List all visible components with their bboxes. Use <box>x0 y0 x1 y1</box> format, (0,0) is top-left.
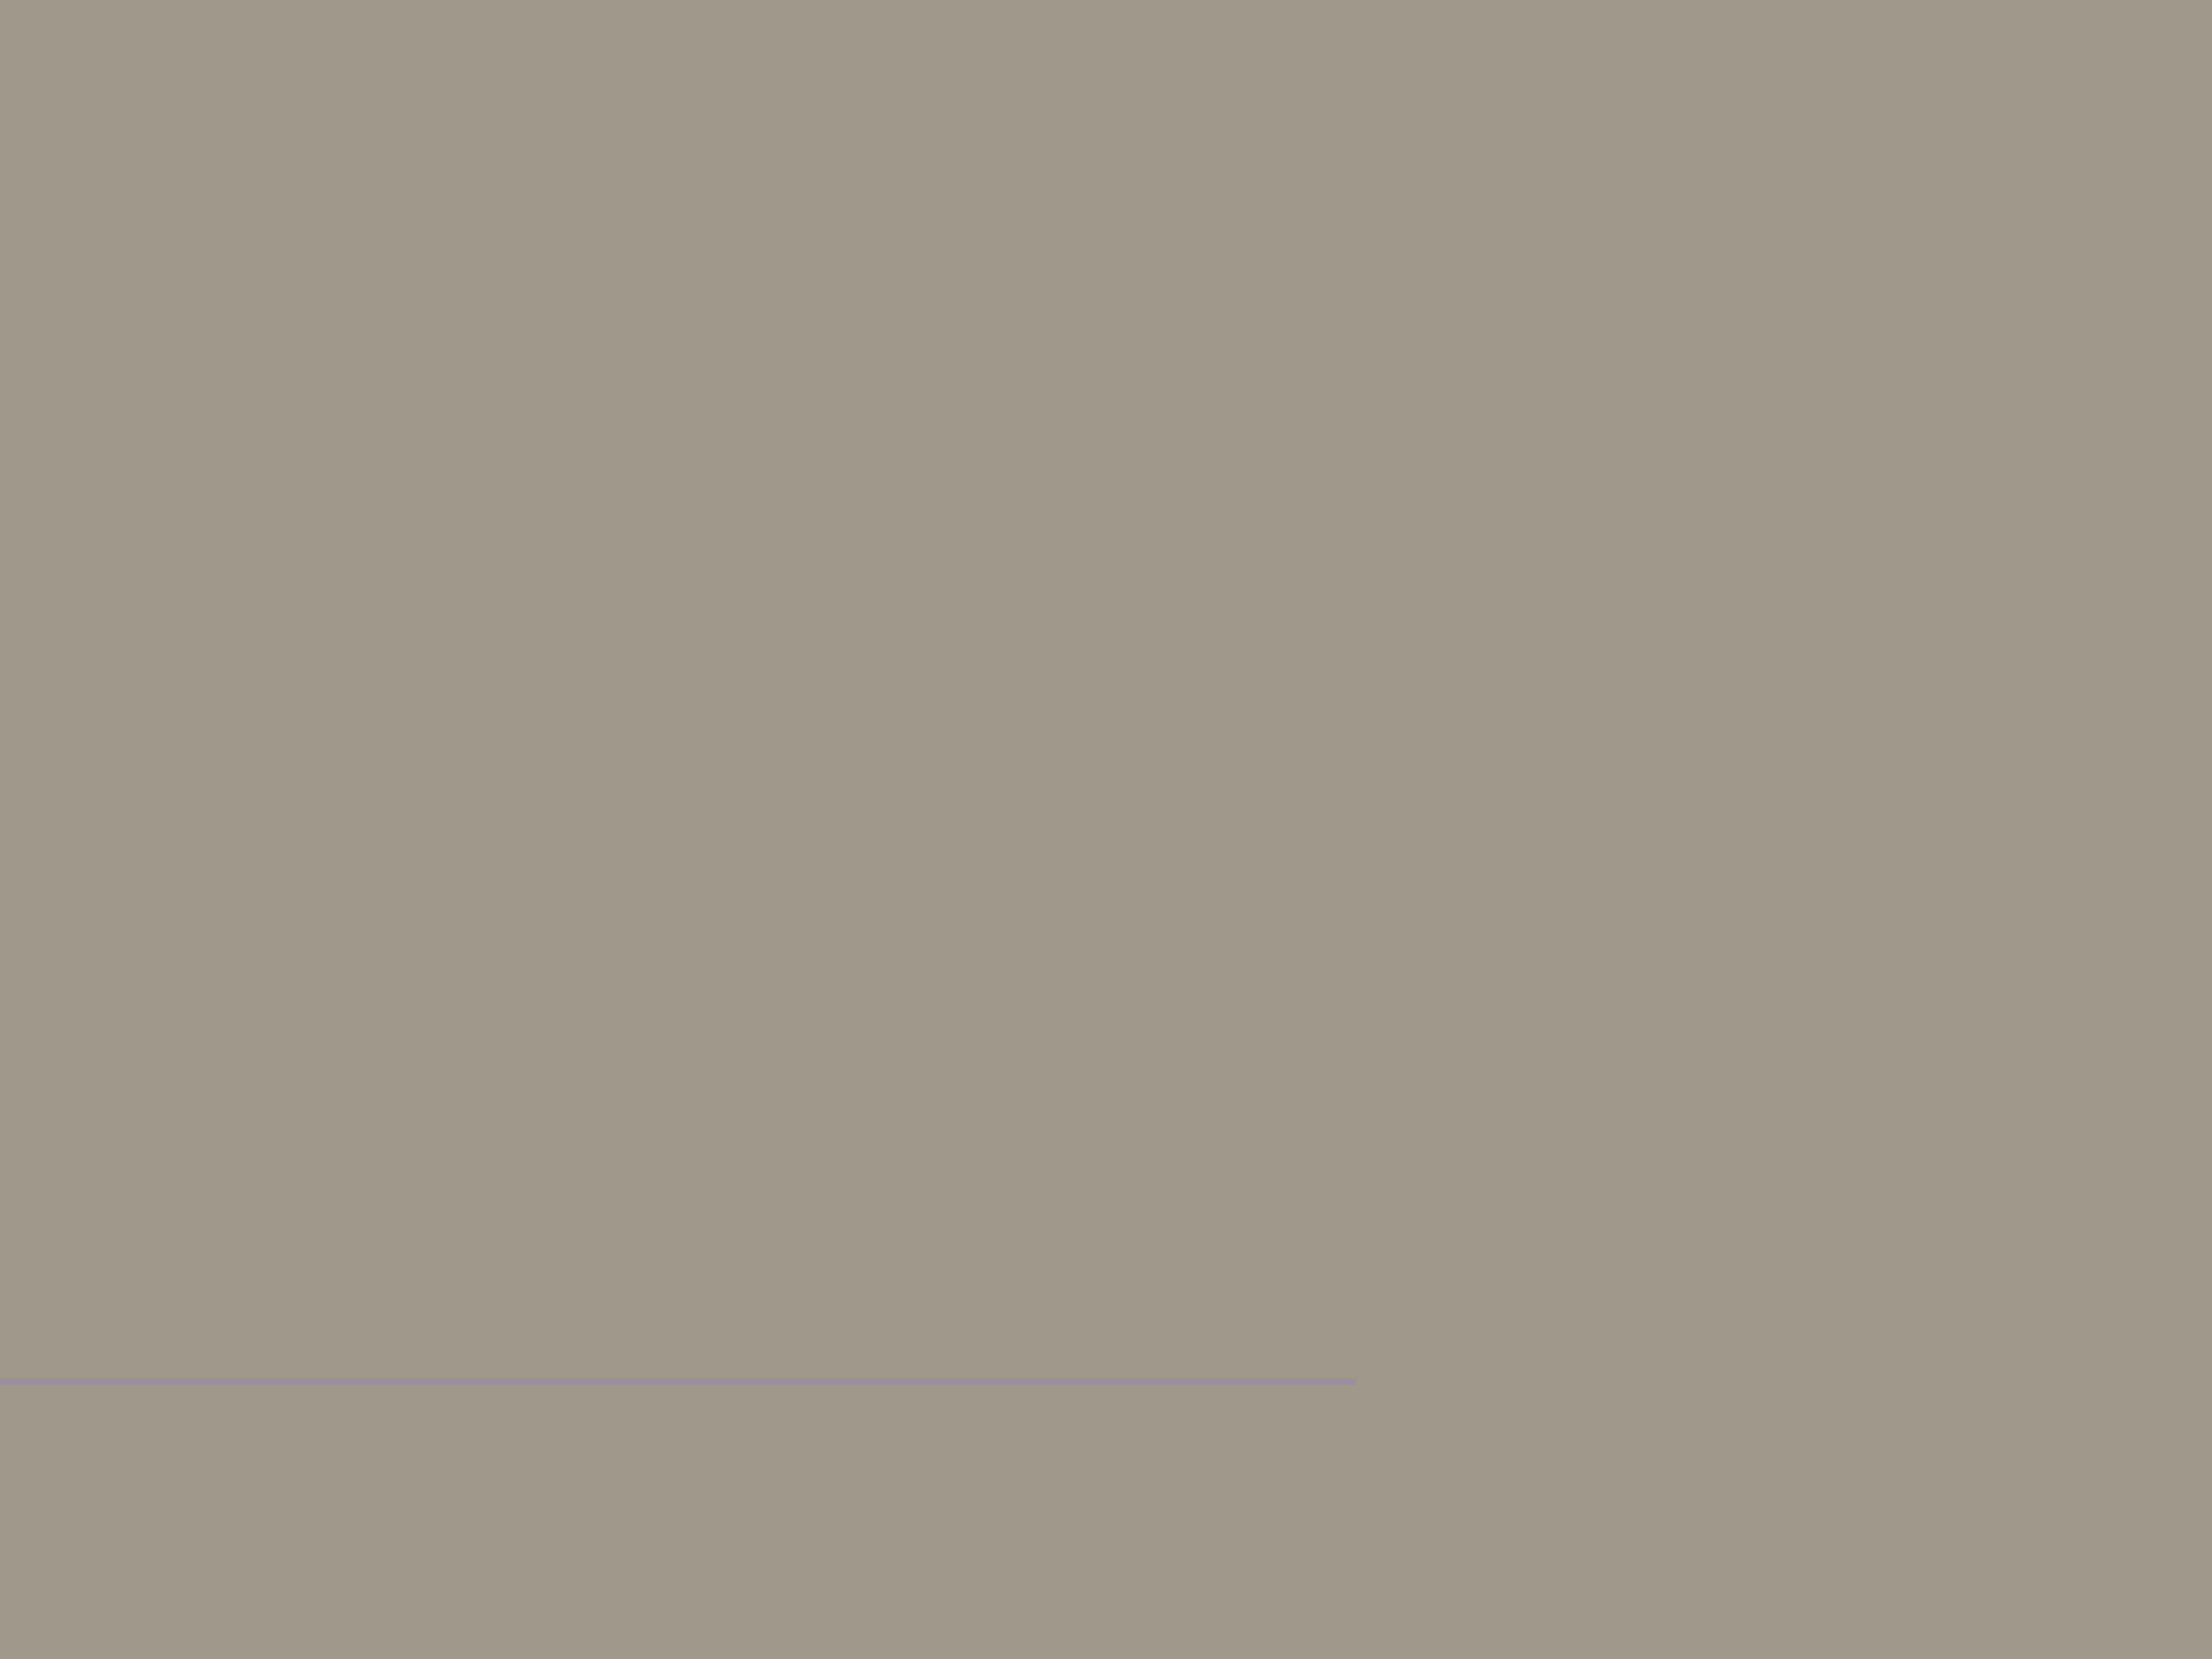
bay-wall-segment <box>170 294 296 420</box>
wall-left-lower <box>0 599 33 1335</box>
window-left-upper <box>0 33 32 122</box>
wall-bay-diagonal <box>0 294 296 590</box>
wall-top <box>0 0 1317 33</box>
floor-plan: 31,80 57,35 58,63 ★ 2А 18,80 7,25 13,00 … <box>0 0 2212 1659</box>
wall-left-upper <box>0 33 32 567</box>
window-bay <box>77 398 192 513</box>
wall-bottom <box>0 1335 1356 1385</box>
window-left-lower <box>0 599 33 726</box>
entry-door-opening <box>0 1335 164 1379</box>
wall-middle-upper <box>0 1385 42 1659</box>
floor-plan-photo: 31,80 57,35 58,63 ★ 2А 18,80 7,25 13,00 … <box>0 0 2212 1659</box>
